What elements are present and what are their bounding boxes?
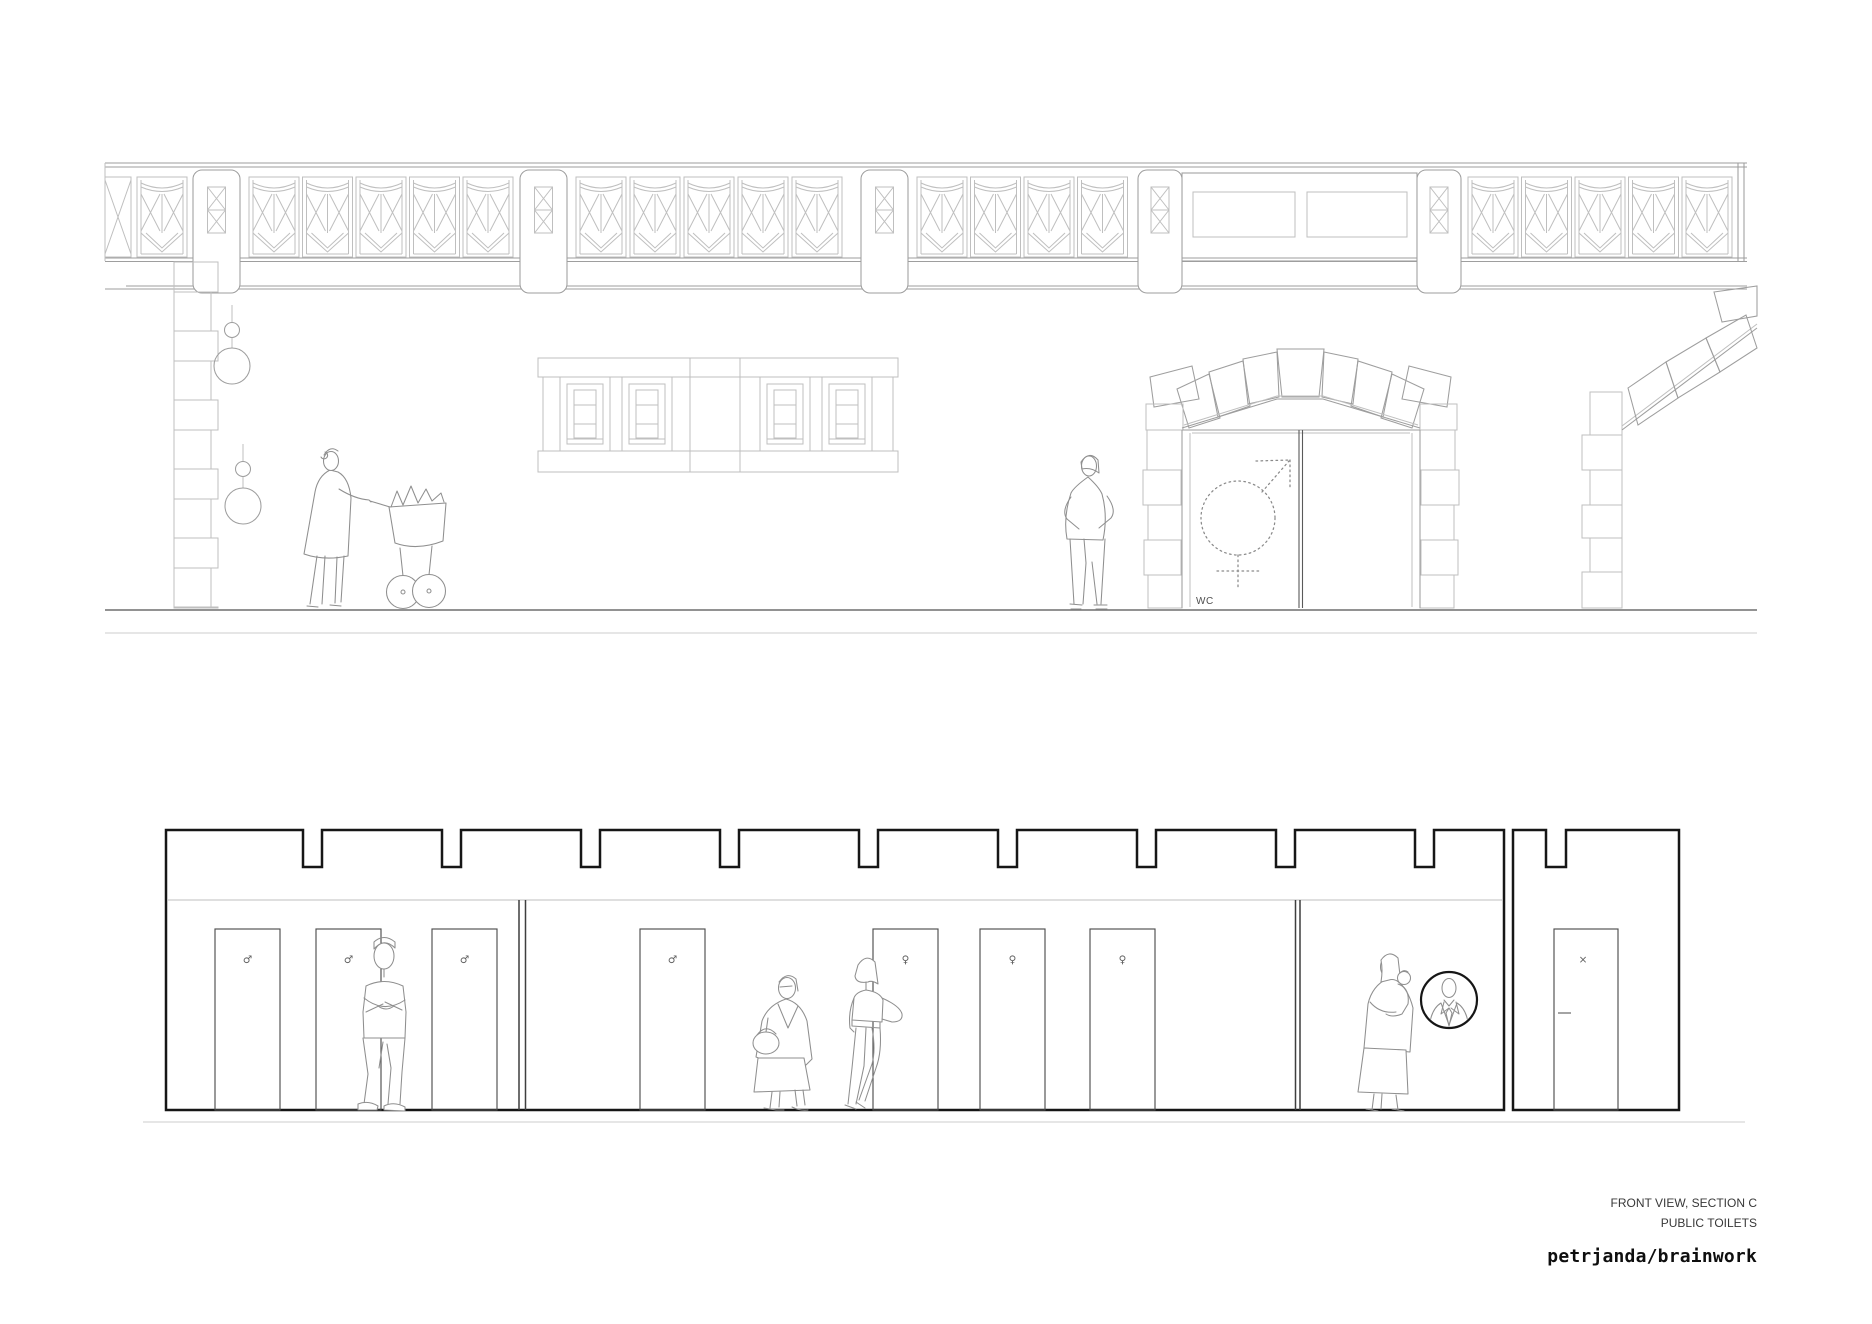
railing-pillar — [520, 170, 567, 293]
railing-pillar — [1138, 170, 1182, 293]
stone-block — [174, 469, 218, 499]
stone-block — [1590, 392, 1622, 435]
railing-pillar — [193, 170, 240, 293]
railing-panel — [463, 177, 513, 257]
upper-ground — [105, 610, 1757, 633]
window-box-top-band — [538, 358, 898, 377]
railing-panel — [1575, 177, 1625, 257]
arch-flank-stone — [1143, 470, 1181, 505]
studio-logo: petrjanda/brainwork — [1547, 1246, 1757, 1267]
project-title: PUBLIC TOILETS — [1661, 1216, 1757, 1230]
right-arch-fragment — [1582, 286, 1757, 608]
stone-block — [174, 400, 218, 430]
arch-voussoir — [1402, 366, 1451, 407]
wall-lamps — [214, 305, 261, 524]
door-gender-symbol: ♀ — [902, 954, 910, 966]
architectural-drawing-sheet: WC ♂♂♂♂♀♀♀ × — [0, 0, 1872, 1324]
female-cross — [1217, 555, 1260, 589]
arch-flank-stone — [1420, 430, 1455, 470]
railing-panel — [137, 177, 187, 257]
railing-panel — [684, 177, 734, 257]
railing-panel — [1629, 177, 1679, 257]
railing-panel — [576, 177, 626, 257]
door-gender-symbol: ♀ — [1119, 954, 1127, 966]
stone-block — [174, 607, 218, 608]
arch-voussoir — [1150, 366, 1199, 407]
railing-panel — [738, 177, 788, 257]
railing-panel — [792, 177, 842, 257]
door-gender-symbol: ♂ — [460, 954, 469, 966]
railing-panel — [249, 177, 299, 257]
lamp-small-globe — [236, 462, 251, 477]
stone-window — [822, 377, 872, 451]
stone-block — [1582, 435, 1622, 470]
drawing-canvas: WC ♂♂♂♂♀♀♀ × — [0, 0, 1872, 1324]
stone-block — [1582, 572, 1622, 608]
stone-block — [1590, 538, 1622, 572]
stone-block — [174, 292, 211, 331]
railing-pillar — [1417, 170, 1461, 293]
arch-flank-stone — [1148, 575, 1182, 608]
stone-window — [760, 377, 810, 451]
attendant-portrait — [1421, 972, 1477, 1028]
title-block: FRONT VIEW, SECTION C PUBLIC TOILETS pet… — [1547, 1196, 1757, 1267]
stone-block — [174, 568, 211, 607]
railing-panel — [917, 177, 967, 257]
toilet-doors: ♂♂♂♂♀♀♀ — [215, 929, 1155, 1110]
arch-flank-stone — [1421, 470, 1459, 505]
railing-panel — [630, 177, 680, 257]
stone-window-box — [538, 358, 898, 472]
stone-block — [174, 361, 211, 400]
arch-voussoir — [1714, 286, 1757, 322]
male-arrow-head — [1256, 460, 1290, 489]
railing-panel — [1024, 177, 1074, 257]
stone-block — [1590, 470, 1622, 505]
male-arrow-shaft — [1262, 461, 1289, 492]
arch-flank-stone — [1144, 540, 1181, 575]
bridge-structure — [105, 163, 1747, 293]
stone-window — [560, 377, 610, 451]
stone-block — [1582, 505, 1622, 538]
view-title: FRONT VIEW, SECTION C — [1611, 1196, 1758, 1210]
annex-door-symbol: × — [1579, 954, 1588, 966]
arch-flank-stone — [1148, 505, 1182, 540]
railing-panel — [410, 177, 460, 257]
stone-block — [174, 331, 218, 361]
figure-woman-holding-baby — [1358, 954, 1413, 1111]
lamp-globe — [214, 348, 250, 384]
stone-window — [622, 377, 672, 451]
railing-panel — [1682, 177, 1732, 257]
figure-elderly-woman — [753, 976, 812, 1111]
arch-voussoir — [1351, 361, 1392, 417]
railing-panel — [303, 177, 353, 257]
portrait-circle-frame — [1421, 972, 1477, 1028]
arch-voussoir — [1666, 338, 1720, 398]
figure-woman-with-pram — [304, 449, 446, 609]
arch-flank-stone — [1147, 430, 1182, 470]
figure-man-crossed-arms — [358, 938, 406, 1112]
door-gender-symbol: ♂ — [243, 954, 252, 966]
railing-panel — [1078, 177, 1128, 257]
window-box-bottom-band — [538, 451, 898, 472]
door-gender-symbol: ♂ — [344, 954, 353, 966]
arch-flank-stone — [1420, 575, 1454, 608]
railing-panel — [356, 177, 406, 257]
railing-pillar — [861, 170, 908, 293]
solid-parapet — [1182, 173, 1417, 261]
lamp-globe — [225, 488, 261, 524]
stone-block — [174, 499, 211, 538]
left-wall-quoins — [174, 262, 218, 608]
figure-person-standing — [1065, 455, 1114, 609]
railing-panel — [971, 177, 1021, 257]
annex-block: × — [1513, 830, 1679, 1110]
wc-label: WC — [1196, 596, 1214, 607]
railing-panel — [1522, 177, 1572, 257]
entrance-arch: WC — [1143, 349, 1459, 608]
lamp-small-globe — [225, 323, 240, 338]
arch-flank-stone — [1146, 404, 1183, 430]
stone-block — [174, 430, 211, 469]
arch-flank-stone — [1421, 540, 1458, 575]
railing-panel — [1468, 177, 1518, 257]
stone-block — [174, 538, 218, 568]
annex-outline-crenellated — [1513, 830, 1679, 1110]
arch-flank-stone — [1420, 505, 1454, 540]
door-gender-symbol: ♂ — [668, 954, 677, 966]
arch-flank-stone — [1420, 404, 1457, 430]
gender-symbol-circle — [1201, 481, 1275, 555]
door-gender-symbol: ♀ — [1009, 954, 1017, 966]
arch-voussoir — [1277, 349, 1324, 397]
